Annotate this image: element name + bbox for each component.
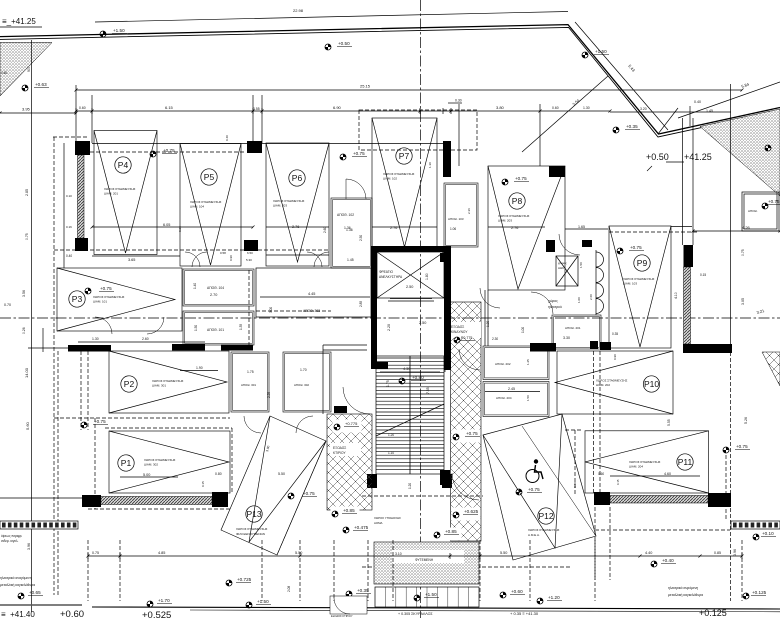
svg-text:KINΔYNOY: KINΔYNOY: [451, 330, 468, 334]
svg-text:25.15: 25.15: [360, 84, 371, 89]
svg-text:AΠOΘ. 104: AΠOΘ. 104: [207, 286, 224, 290]
svg-text:+41.25: +41.25: [684, 152, 712, 162]
svg-text:4.60: 4.60: [664, 472, 671, 476]
svg-text:ANEΛKYΣTHPA: ANEΛKYΣTHPA: [379, 275, 403, 279]
svg-text:+0.125: +0.125: [752, 590, 767, 595]
svg-text:3.56: 3.56: [22, 290, 26, 297]
svg-text:1.45: 1.45: [706, 109, 713, 113]
svg-text:2.70: 2.70: [210, 293, 217, 297]
svg-text:0.80: 0.80: [215, 472, 222, 476]
svg-text:+1.20: +1.20: [548, 595, 560, 600]
svg-text:1.75: 1.75: [247, 370, 254, 374]
svg-text:+0.75: +0.75: [94, 419, 106, 424]
svg-text:P5: P5: [204, 172, 215, 182]
svg-text:όψεως περιφρ.: όψεως περιφρ.: [1, 534, 22, 538]
svg-text:ηλεκτρού: ηλεκτρού: [548, 305, 562, 309]
svg-text:3.20: 3.20: [640, 107, 647, 111]
svg-text:+0.75: +0.75: [515, 176, 527, 181]
svg-text:+0.50: +0.50: [646, 152, 669, 162]
svg-text:4.85: 4.85: [158, 551, 165, 555]
svg-text:1.00: 1.00: [577, 297, 581, 303]
svg-text:2.08: 2.08: [287, 586, 291, 592]
svg-text:ΧΩΡΟΣ ΥΠΟΔΟΧΗΣ: ΧΩΡΟΣ ΥΠΟΔΟΧΗΣ: [374, 516, 401, 520]
svg-text:+0.35: +0.35: [357, 588, 369, 593]
svg-text:1.35: 1.35: [239, 324, 243, 330]
svg-text:AΠOΘ.: AΠOΘ.: [748, 209, 758, 213]
svg-text:KTIPIOY: KTIPIOY: [333, 451, 346, 455]
svg-text:P7: P7: [399, 151, 410, 161]
svg-text:ΧΩΡΟΣ ΣΤΑΘΜΕΥΣΗΣ: ΧΩΡΟΣ ΣΤΑΘΜΕΥΣΗΣ: [629, 460, 661, 464]
svg-text:1.10: 1.10: [388, 451, 394, 455]
svg-text:≡_+41.40: ≡_+41.40: [1, 610, 35, 618]
svg-text:2.76: 2.76: [511, 226, 518, 230]
svg-text:AΠOΘ. 302: AΠOΘ. 302: [294, 383, 309, 387]
svg-text:1.20: 1.20: [408, 483, 412, 489]
svg-text:+0.75: +0.75: [303, 491, 315, 496]
svg-text:1.20: 1.20: [388, 433, 394, 437]
svg-text:1.65: 1.65: [578, 225, 585, 229]
svg-text:ΧΩΡΟΣ ΣΤΑΘΜΕΥΣΗΣ: ΧΩΡΟΣ ΣΤΑΘΜΕΥΣΗΣ: [273, 199, 305, 203]
svg-text:+1.50: +1.50: [113, 28, 125, 33]
svg-text:ΧΩΡΟΣ ΣΤΑΘΜΕΥΣΗΣ: ΧΩΡΟΣ ΣΤΑΘΜΕΥΣΗΣ: [190, 200, 222, 204]
svg-text:0.26: 0.26: [22, 327, 26, 334]
svg-text:0.15: 0.15: [700, 273, 706, 277]
svg-text:+0.75: +0.75: [163, 148, 175, 153]
svg-text:0.60: 0.60: [598, 472, 604, 476]
svg-text:P4: P4: [118, 160, 129, 170]
svg-text:P1: P1: [121, 458, 132, 468]
svg-text:+0.725: +0.725: [237, 577, 252, 582]
svg-text:P10: P10: [644, 379, 659, 389]
svg-text:2.60: 2.60: [142, 337, 149, 341]
svg-text:A.M.E.A.: A.M.E.A.: [528, 533, 540, 537]
svg-text:+0.50: +0.50: [338, 41, 350, 46]
svg-text:ΧΩΡΟΣ ΣΤΑΘΜΕΥΣΗΣ: ΧΩΡΟΣ ΣΤΑΘΜΕΥΣΗΣ: [528, 528, 560, 532]
svg-text:ΧΩΡΟΣ ΣΤΑΘΜΕΥΣΗΣ: ΧΩΡΟΣ ΣΤΑΘΜΕΥΣΗΣ: [93, 295, 125, 299]
svg-text:P2: P2: [124, 379, 135, 389]
svg-text:2.85: 2.85: [25, 189, 29, 196]
svg-text:1.90: 1.90: [196, 366, 203, 370]
svg-text:4.10: 4.10: [674, 292, 678, 299]
svg-text:0.60: 0.60: [552, 106, 559, 110]
svg-text:2.50: 2.50: [406, 285, 413, 289]
svg-text:ΦΙΛΟΞΕΝΟΥΜΕΝΩΝ: ΦΙΛΟΞΕΝΟΥΜΕΝΩΝ: [236, 532, 265, 536]
svg-text:ΧΩΡΟΣ ΣΤΑΘΜΕΥΣΗΣ: ΧΩΡΟΣ ΣΤΑΘΜΕΥΣΗΣ: [596, 379, 628, 383]
svg-text:5.55: 5.55: [667, 419, 671, 426]
svg-text:2.45: 2.45: [508, 387, 515, 391]
svg-text:ΧΩΡΟΣ ΣΤΑΘΜΕΥΣΗΣ: ΧΩΡΟΣ ΣΤΑΘΜΕΥΣΗΣ: [498, 214, 530, 218]
svg-text:+0.63: +0.63: [35, 82, 47, 87]
svg-text:1.70: 1.70: [300, 368, 307, 372]
svg-text:5.60: 5.60: [25, 421, 30, 430]
svg-text:907: 907: [27, 66, 31, 72]
svg-text:+0.75: +0.75: [768, 199, 780, 204]
svg-text:0.90: 0.90: [229, 255, 233, 261]
svg-text:ΔIAM. 101: ΔIAM. 101: [93, 300, 107, 304]
svg-text:ΑΟΜΑ: ΑΟΜΑ: [374, 521, 383, 525]
svg-text:1.80: 1.80: [425, 273, 429, 280]
svg-text:ΧΩΡΟΣ ΣΤΑΘΜΕΥΣΗΣ: ΧΩΡΟΣ ΣΤΑΘΜΕΥΣΗΣ: [144, 458, 176, 462]
svg-text:+1.50: +1.50: [257, 599, 269, 604]
svg-text:0.75: 0.75: [25, 233, 29, 240]
svg-text:1.75: 1.75: [386, 380, 390, 387]
svg-text:14.00: 14.00: [24, 367, 29, 378]
svg-text:3.95: 3.95: [22, 107, 31, 112]
svg-text:2.85: 2.85: [359, 301, 363, 307]
svg-text:7.55: 7.55: [426, 387, 430, 394]
svg-text:0.75: 0.75: [92, 551, 99, 555]
svg-text:+0.75: +0.75: [528, 487, 540, 492]
svg-text:+0.525: +0.525: [142, 610, 171, 618]
svg-text:ΧΩΡΟΣ ΣΤΑΘΜΕΥΣΗΣ: ΧΩΡΟΣ ΣΤΑΘΜΕΥΣΗΣ: [236, 527, 268, 531]
svg-text:AΠOΘ. 204: AΠOΘ. 204: [496, 396, 512, 400]
svg-text:6.50: 6.50: [247, 251, 253, 255]
svg-text:5.50: 5.50: [500, 551, 507, 555]
svg-text:+0.625: +0.625: [464, 509, 479, 514]
svg-text:2.60: 2.60: [589, 294, 593, 300]
svg-text:+0.75: +0.75: [100, 286, 112, 291]
svg-text:1.25: 1.25: [526, 359, 530, 365]
svg-text:ΔIAM. 203: ΔIAM. 203: [273, 204, 287, 208]
svg-text:2.50: 2.50: [359, 235, 363, 241]
svg-text:0.26: 0.26: [178, 226, 182, 232]
svg-text:0.16: 0.16: [66, 225, 72, 229]
svg-text:4.45: 4.45: [308, 292, 315, 296]
svg-text:+0.75: +0.75: [736, 444, 748, 449]
svg-text:0.15: 0.15: [201, 481, 205, 487]
svg-text:ΔIAM. 203: ΔIAM. 203: [498, 219, 512, 223]
svg-text:EΞOΔOΣ: EΞOΔOΣ: [451, 325, 464, 329]
svg-text:ΔIAM. 202: ΔIAM. 202: [596, 383, 610, 387]
svg-text:ΔIAM. 301: ΔIAM. 301: [152, 384, 166, 388]
svg-text:3.96: 3.96: [733, 549, 737, 556]
svg-text:5.00: 5.00: [143, 473, 150, 477]
svg-text:2.35: 2.35: [267, 392, 271, 398]
svg-text:P0.775: P0.775: [461, 336, 472, 340]
svg-text:ΧΩΡΟΣ ΣΤΑΘΜΕΥΣΗΣ: ΧΩΡΟΣ ΣΤΑΘΜΕΥΣΗΣ: [152, 379, 184, 383]
svg-text:0.10: 0.10: [66, 194, 72, 198]
svg-text:0.40: 0.40: [66, 254, 72, 258]
svg-text:1.50: 1.50: [194, 325, 198, 331]
svg-text:+0.65: +0.65: [29, 590, 41, 595]
svg-text:2.36: 2.36: [467, 208, 471, 214]
svg-text:ΧΩΡΟΣ ΣΤΑΘΜΕΥΣΗΣ: ΧΩΡΟΣ ΣΤΑΘΜΕΥΣΗΣ: [383, 172, 415, 176]
svg-text:0.90: 0.90: [613, 354, 617, 360]
svg-text:ηλεκτρικά αναγόμενη: ηλεκτρικά αναγόμενη: [0, 576, 32, 580]
svg-text:2.60: 2.60: [323, 227, 327, 233]
svg-text:3.10: 3.10: [395, 552, 402, 556]
svg-text:5.50: 5.50: [278, 472, 285, 476]
svg-text:+0.125: +0.125: [699, 608, 727, 618]
svg-text:1.30: 1.30: [92, 337, 99, 341]
svg-text:AΠOΘ. 103: AΠOΘ. 103: [448, 217, 464, 221]
svg-text:P13: P13: [246, 509, 261, 519]
svg-text:+0.40: +0.40: [662, 558, 674, 563]
svg-text:1.30: 1.30: [428, 162, 432, 168]
svg-text:ΔIAM. 204: ΔIAM. 204: [629, 465, 643, 469]
svg-text:1.36: 1.36: [344, 226, 351, 230]
svg-text:AHK: AHK: [558, 266, 564, 270]
svg-text:+ 0.35 ≡ +41.30: + 0.35 ≡ +41.30: [510, 611, 539, 616]
svg-text:+0.75: +0.75: [466, 431, 478, 436]
svg-text:+0.60: +0.60: [511, 589, 523, 594]
svg-text:AΠOΘ. 101: AΠOΘ. 101: [207, 328, 224, 332]
svg-text:6.05: 6.05: [163, 223, 170, 227]
svg-text:ΦPEATIO: ΦPEATIO: [379, 270, 394, 274]
svg-text:3.00: 3.00: [269, 307, 273, 313]
svg-text:1.45: 1.45: [347, 258, 354, 262]
svg-text:2.76: 2.76: [390, 226, 397, 230]
svg-text:EΞΟΔΟΣ ΚΤΙΡΙΟΥ: EΞΟΔΟΣ ΚΤΙΡΙΟΥ: [331, 614, 353, 618]
svg-text:4.40: 4.40: [645, 551, 652, 555]
svg-text:P8: P8: [512, 196, 523, 206]
svg-text:3.30: 3.30: [563, 336, 570, 340]
svg-text:1.40: 1.40: [193, 283, 197, 289]
svg-text:1.06: 1.06: [450, 227, 456, 231]
svg-text:ΔIAM. 104: ΔIAM. 104: [190, 205, 204, 209]
svg-text:1.30: 1.30: [583, 106, 590, 110]
svg-text:0.58: 0.58: [220, 251, 226, 255]
svg-text:3.05: 3.05: [741, 298, 745, 305]
svg-text:2.20: 2.20: [387, 324, 391, 331]
svg-text:22.98: 22.98: [293, 8, 304, 13]
svg-text:+0.80: +0.80: [412, 375, 424, 380]
svg-text:+1.70: +1.70: [158, 598, 170, 603]
svg-text:ΔIAM. 102: ΔIAM. 102: [383, 177, 397, 181]
svg-text:P11: P11: [678, 457, 693, 467]
svg-text:μεταλλική καγκελόθυρα: μεταλλική καγκελόθυρα: [668, 593, 703, 597]
svg-text:+0.775: +0.775: [345, 421, 358, 426]
svg-text:5.26: 5.26: [744, 417, 748, 424]
svg-text:ΦYTEMENH: ΦYTEMENH: [415, 558, 434, 562]
svg-text:≡_+41.25: ≡_+41.25: [2, 17, 36, 26]
svg-text:ΔIAM. 302: ΔIAM. 302: [144, 463, 158, 467]
svg-text:1.50: 1.50: [526, 395, 530, 401]
svg-text:χώρος: χώρος: [558, 261, 567, 265]
svg-text:+0.10: +0.10: [762, 531, 774, 536]
svg-text:μεταλλική καγκελόθυρα: μεταλλική καγκελόθυρα: [0, 583, 35, 587]
svg-text:ηλεκτρικά συρόμενη: ηλεκτρικά συρόμενη: [668, 586, 698, 590]
svg-text:2.50: 2.50: [419, 321, 426, 325]
svg-text:0.85: 0.85: [714, 551, 721, 555]
svg-text:6.90: 6.90: [333, 105, 342, 110]
svg-text:3.65: 3.65: [128, 258, 135, 262]
svg-text:σιδερ. κιγκλ.: σιδερ. κιγκλ.: [1, 539, 19, 543]
svg-text:P3: P3: [72, 294, 83, 304]
svg-text:+0.85: +0.85: [445, 529, 457, 534]
svg-text:1.50: 1.50: [579, 262, 583, 268]
svg-text:0.60: 0.60: [79, 106, 86, 110]
svg-text:0.30: 0.30: [455, 99, 462, 103]
svg-text:ΧΩΡΟΣ ΣΤΑΘΜΕΥΣΗΣ: ΧΩΡΟΣ ΣΤΑΘΜΕΥΣΗΣ: [623, 277, 655, 281]
svg-text:AΠOΘ. 201: AΠOΘ. 201: [565, 326, 581, 330]
svg-text:+0.35: +0.35: [626, 124, 638, 129]
svg-text:+0.75: +0.75: [353, 151, 365, 156]
svg-text:AΠOΘ. 202: AΠOΘ. 202: [495, 362, 511, 366]
svg-text:+1.50: +1.50: [595, 49, 607, 54]
svg-text:+0.75: +0.75: [630, 245, 642, 250]
svg-text:2.30: 2.30: [492, 337, 498, 341]
svg-text:3.96: 3.96: [27, 543, 31, 550]
svg-text:1.00: 1.00: [521, 327, 525, 333]
svg-text:P6: P6: [292, 173, 303, 183]
svg-text:AΠOΘ. 301: AΠOΘ. 301: [241, 383, 256, 387]
svg-text:+0.475: +0.475: [354, 525, 369, 530]
svg-text:4.30: 4.30: [403, 367, 410, 371]
svg-text:0.40: 0.40: [225, 135, 229, 141]
svg-text:+ 0.305 ΣΚΥPΑΛΛΟΣ: + 0.305 ΣΚΥPΑΛΛΟΣ: [398, 612, 433, 616]
svg-text:0.15: 0.15: [616, 479, 620, 485]
svg-text:3.80: 3.80: [496, 105, 505, 110]
svg-text:ΔIAM. 201: ΔIAM. 201: [104, 192, 118, 196]
svg-text:0.75: 0.75: [741, 249, 745, 256]
svg-text:+0.85: +0.85: [343, 508, 355, 513]
svg-text:AΠOΘ. 102: AΠOΘ. 102: [337, 213, 354, 217]
svg-text:0.35: 0.35: [612, 332, 618, 336]
svg-text:P12: P12: [538, 511, 553, 521]
svg-text:+0.60: +0.60: [60, 609, 84, 618]
svg-text:P9: P9: [637, 258, 648, 268]
svg-text:0.40: 0.40: [694, 100, 701, 104]
svg-text:EΞOΔOΣ: EΞOΔOΣ: [333, 446, 346, 450]
svg-text:1.20: 1.20: [486, 321, 490, 327]
svg-text:0.70: 0.70: [4, 303, 11, 307]
svg-text:0.60.: 0.60.: [1, 71, 8, 75]
svg-text:6.15: 6.15: [165, 105, 174, 110]
svg-text:5.30: 5.30: [246, 258, 252, 262]
svg-text:ΧΩΡΟΣ ΣΤΑΘΜΕΥΣΗΣ: ΧΩΡΟΣ ΣΤΑΘΜΕΥΣΗΣ: [104, 187, 136, 191]
svg-text:ΔIAM. 103: ΔIAM. 103: [623, 282, 637, 286]
